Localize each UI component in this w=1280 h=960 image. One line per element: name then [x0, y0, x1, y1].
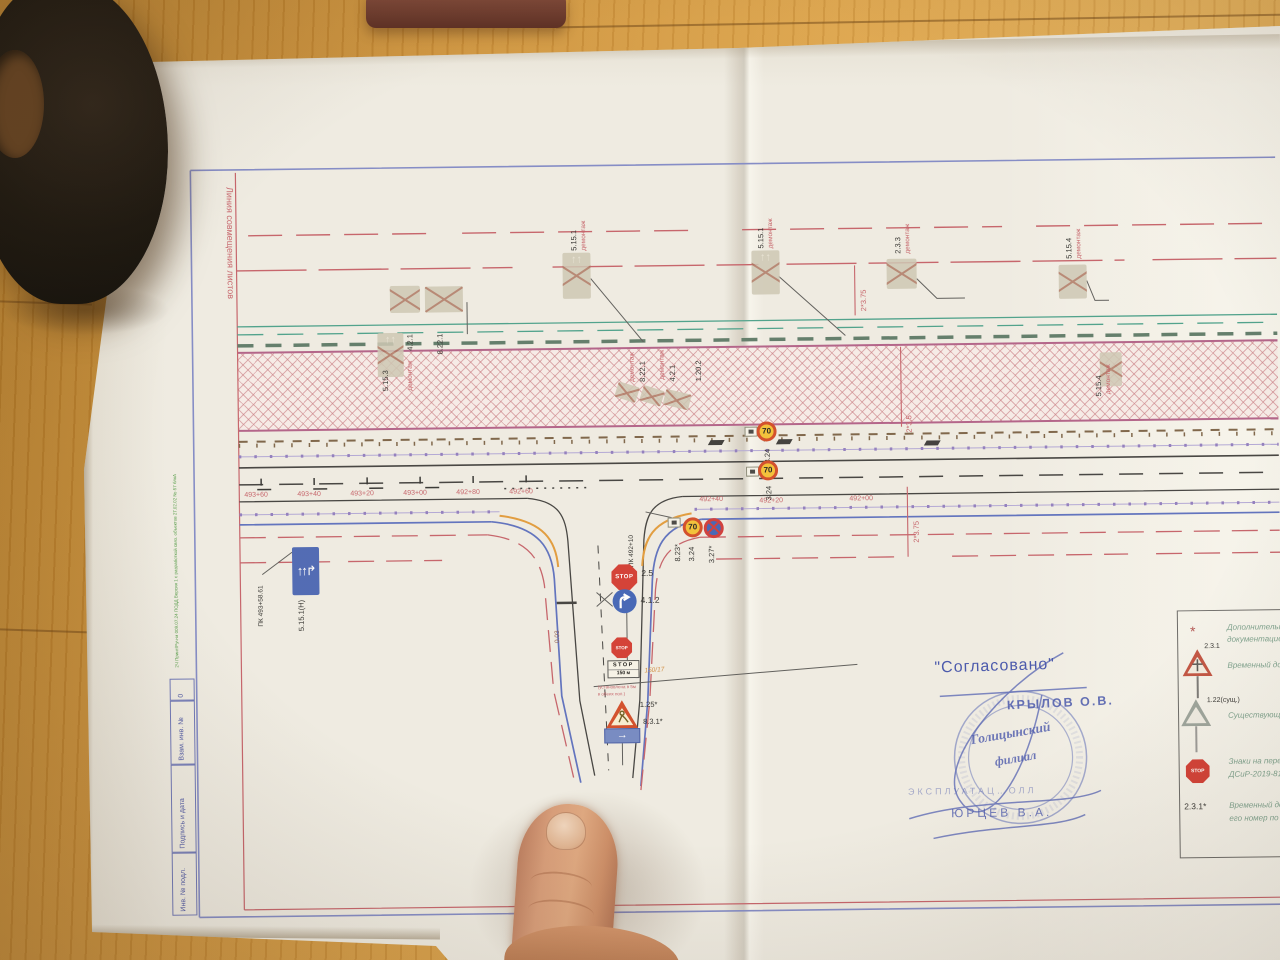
- sign-pole: [1197, 676, 1199, 698]
- temporary-sign-icon: [1182, 649, 1212, 676]
- sign-label: 8.22.1: [435, 334, 444, 355]
- chainage-label: 492+80: [456, 488, 480, 497]
- sign-label: 4.2.1: [405, 334, 414, 351]
- legend-text: Временный дор: [1229, 800, 1280, 810]
- demolished-sign: [886, 259, 916, 289]
- legend-text: Знаки на пере: [1229, 756, 1280, 766]
- roadworks-sign: [606, 700, 638, 728]
- chainage-label: 493+60: [244, 491, 268, 500]
- speed-value: 70: [764, 465, 773, 474]
- crossroad-glyph-icon: [1182, 649, 1212, 676]
- sign-label: 1.20.2: [694, 360, 703, 381]
- demolition-note: демонтаж: [628, 352, 637, 382]
- sign-label: 3.24: [687, 547, 696, 562]
- stop-sign: STOP: [611, 564, 637, 590]
- station-label: ПК 493+58.61: [256, 585, 266, 626]
- legend-text: его номер по: [1229, 813, 1278, 823]
- chainage-label: 492+40: [699, 495, 723, 504]
- sign-label: 5.15.4: [1064, 238, 1073, 259]
- sheet-match-note: Линия совмещения листов: [225, 187, 235, 299]
- stop-sign-icon: STOP: [1186, 759, 1210, 783]
- no-stopping-sign: [704, 518, 724, 538]
- sign-label: 4.1.2: [641, 596, 660, 605]
- speed-limit-70-sign: 70: [758, 460, 778, 480]
- sign-label: 5.15.1(Н): [297, 600, 306, 631]
- sign-label: 8.23*: [673, 544, 682, 562]
- stop-sign: STOP: [611, 637, 632, 658]
- brown-case-object: [366, 0, 566, 28]
- camera-plate-icon: [668, 518, 681, 528]
- sign-label: 2.5: [641, 569, 653, 578]
- titleblock-mark: 0: [178, 694, 185, 698]
- dark-object-hole: [0, 50, 44, 158]
- approved-text: "Согласовано": [934, 656, 1055, 678]
- sign-label: 3.24: [764, 486, 773, 501]
- demolition-note: демонтаж: [406, 361, 415, 391]
- sign-label: 5.15.1: [569, 230, 578, 251]
- handwritten-note: 150/17: [644, 665, 664, 675]
- legend-sign-number: 2.3.1*: [1184, 801, 1206, 811]
- sign-label: 8.3.1*: [643, 717, 663, 726]
- asterisk-symbol: *: [1190, 627, 1196, 636]
- second-name: ЮРЦЕВ В.А.: [951, 805, 1052, 820]
- demolition-note: демонтаж: [903, 224, 912, 254]
- chainage-label: 493+00: [403, 489, 427, 498]
- photo-of-road-plan: Линия совмещения листов 2Ч Принт/Руч-м 0…: [0, 0, 1280, 960]
- sign-label: 8.22.1: [638, 361, 647, 382]
- stop-word: STOP: [615, 574, 633, 580]
- demolition-note: демонтаж: [1104, 364, 1113, 394]
- legend-text: ДСиР-2019-81: [1229, 769, 1280, 779]
- demolition-note: демонтаж: [1074, 229, 1083, 259]
- demolition-note: демонтаж: [658, 350, 667, 380]
- demolished-sign: ↑↑: [562, 253, 591, 299]
- chainage-label: 493+40: [297, 490, 321, 499]
- turn-right-sign: [612, 589, 636, 613]
- lane-arrows-icon: ↑↑↱: [297, 563, 315, 578]
- demolition-note: демонтаж: [766, 218, 775, 248]
- sign-label: 5.15.4: [1094, 375, 1103, 396]
- speed-limit-70-sign: 70: [683, 517, 703, 537]
- legend-text: Существующий: [1228, 710, 1280, 720]
- legend-text: документацией: [1227, 634, 1280, 644]
- titleblock-row: Взам. инв. №: [178, 717, 186, 760]
- demolished-sign: [425, 286, 463, 312]
- legend-text: Дополнительны: [1227, 622, 1280, 632]
- dimension-label: 2*3.5: [904, 415, 913, 433]
- chainage-label: 492+00: [849, 494, 873, 503]
- titleblock-row: Подпись и дата: [179, 798, 187, 848]
- demolished-sign: [390, 286, 420, 313]
- legend-sign-number: 1.22(сущ.): [1207, 697, 1240, 704]
- install-note: в обеих пол.): [598, 689, 626, 698]
- station-label: ПК 492+10: [627, 535, 636, 567]
- demolished-sign: ↑↑: [751, 250, 780, 294]
- fingernail: [546, 812, 586, 850]
- stop-word: STOP: [616, 645, 628, 650]
- sign-label: 2.3.3: [893, 237, 902, 254]
- stop-distance-plate: STOP 150 м: [607, 660, 639, 678]
- sign-label: 5.15.3: [381, 370, 390, 391]
- chainage-label: 493+20: [350, 489, 374, 498]
- radius-label: 0.03: [553, 630, 562, 643]
- legend-sign-number: 2.3.1: [1204, 643, 1220, 650]
- department-text: ЭКСПЛУАТАЦ…ОЛЛ: [908, 785, 1037, 797]
- digging-man-icon: [606, 700, 638, 728]
- sign-label: 4.2.1: [668, 365, 677, 382]
- speed-value: 70: [688, 522, 697, 531]
- chainage-label: 492+60: [509, 487, 533, 496]
- demolished-sign: [1059, 265, 1087, 299]
- titleblock-row: Инв. № подл.: [180, 868, 188, 912]
- legend-text: Временный дор: [1227, 660, 1280, 670]
- lane-directions-sign: ↑↑↱: [292, 547, 320, 595]
- demolition-note: демонтаж: [579, 221, 588, 251]
- dimension-label: 2*3.75: [912, 521, 921, 543]
- dimension-label: 2*3.75: [859, 290, 868, 312]
- speed-value: 70: [762, 426, 771, 435]
- sign-pole: [1195, 726, 1197, 752]
- sign-label: 3.27*: [707, 546, 716, 564]
- stop-word: STOP: [1191, 768, 1205, 774]
- sign-label: 1.25*: [640, 700, 658, 709]
- arrow-icon: →: [617, 729, 628, 741]
- sign-label: 5.15.1: [756, 228, 765, 249]
- speed-limit-70-sign: 70: [756, 421, 776, 441]
- turn-right-arrow-icon: [612, 589, 636, 613]
- direction-plate-sign: →: [604, 728, 640, 743]
- plate-line2: 150 м: [608, 669, 638, 677]
